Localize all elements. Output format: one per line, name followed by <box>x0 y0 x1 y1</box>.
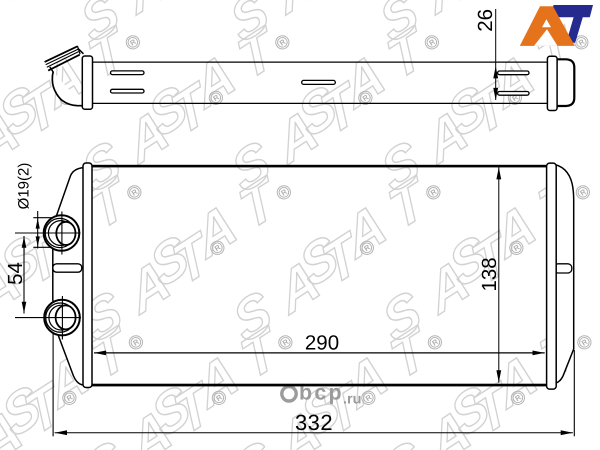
svg-text:138: 138 <box>478 257 501 291</box>
svg-text:26: 26 <box>474 9 497 32</box>
svg-text:290: 290 <box>305 331 339 354</box>
svg-text:54: 54 <box>4 262 27 285</box>
svg-text:Ø19(2): Ø19(2) <box>16 163 33 210</box>
svg-text:332: 332 <box>295 410 333 435</box>
svg-text:.ru: .ru <box>343 392 362 408</box>
